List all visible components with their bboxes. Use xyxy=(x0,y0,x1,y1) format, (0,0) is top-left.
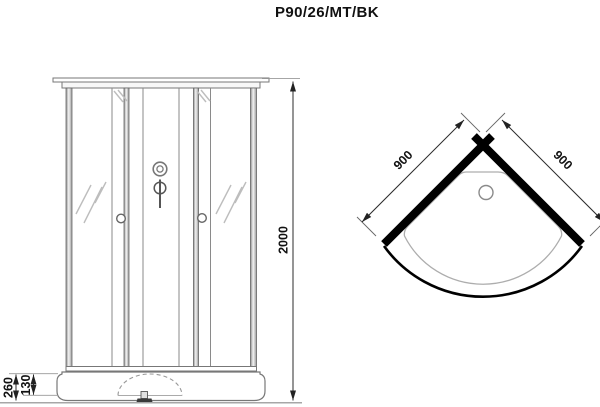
base-skirt xyxy=(57,372,265,401)
left-stile xyxy=(66,88,72,367)
technical-drawing-canvas: P90/26/MT/BK xyxy=(0,0,600,407)
dimension-height: 2000 xyxy=(262,79,300,401)
dimension-base: 260 130 xyxy=(2,374,59,401)
roof-lip xyxy=(53,78,269,82)
shower-dial-inner xyxy=(157,166,163,172)
foot-stem xyxy=(141,392,148,399)
top-view: 900 900 xyxy=(357,113,600,297)
front-view: 2000 260 130 xyxy=(0,78,302,403)
right-wall-dimension-label: 900 xyxy=(551,148,576,173)
height-dimension-label: 2000 xyxy=(277,226,291,254)
mixer-controls xyxy=(153,162,167,208)
left-mullion xyxy=(124,88,129,367)
foot-plate xyxy=(137,399,153,403)
drawing-svg: P90/26/MT/BK xyxy=(0,0,600,407)
bottom-rail xyxy=(66,367,257,372)
base-total-dimension-label: 260 xyxy=(2,377,16,398)
right-stile xyxy=(251,88,257,367)
base-step-dimension-label: 130 xyxy=(19,375,33,396)
left-door-handle-icon xyxy=(117,214,126,223)
left-wall-dimension-label: 900 xyxy=(391,148,416,173)
roof-bar xyxy=(62,82,260,88)
right-mullion xyxy=(194,88,199,367)
page-title: P90/26/MT/BK xyxy=(275,4,379,21)
drain-icon xyxy=(479,186,493,200)
right-door-handle-icon xyxy=(198,214,207,223)
